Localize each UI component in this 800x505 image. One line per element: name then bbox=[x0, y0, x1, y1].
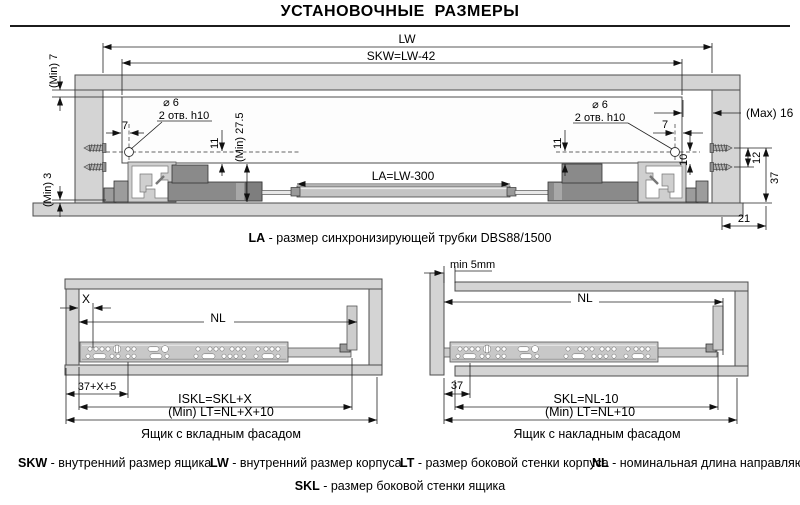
legend-desc: - номинальная длина направляющей bbox=[609, 456, 800, 470]
hole-dia-right: ⌀ 6 bbox=[592, 99, 608, 111]
right-drawing-caption: Ящик с накладным фасадом bbox=[436, 427, 758, 441]
dim-12: 12 bbox=[751, 152, 763, 164]
dim-la: LA=LW-300 bbox=[372, 169, 435, 183]
drawer-slide-rail bbox=[80, 342, 288, 362]
caption-text: - размер синхронизирующей трубки DBS88/1… bbox=[265, 231, 551, 245]
dim-x: X bbox=[82, 292, 90, 306]
cabinet-bottom-panel bbox=[33, 203, 743, 216]
legend-skw: SKW - внутренний размер ящика bbox=[18, 456, 211, 470]
right-slide-assembly bbox=[515, 162, 708, 202]
drawer-overlay-facade-drawing: min 5mm NL 37 SKL=NL-10 (Min) LT=NL+10 bbox=[424, 259, 748, 424]
dim-skw: SKW=LW-42 bbox=[367, 49, 436, 63]
dim-37: 37 bbox=[769, 172, 781, 184]
legend-desc: - внутренний размер корпуса bbox=[229, 456, 402, 470]
dim-skl: SKL=NL-10 bbox=[554, 392, 619, 406]
hole-note-left: 2 отв. h10 bbox=[159, 110, 209, 122]
legend-term: LT bbox=[400, 456, 414, 470]
inset-facade bbox=[66, 289, 79, 365]
legend-desc: - размер боковой стенки ящика bbox=[320, 479, 506, 493]
legend-lt: LT - размер боковой стенки корпуса bbox=[400, 456, 609, 470]
dim-min7: (Min) 7 bbox=[48, 54, 60, 88]
legend-desc: - внутренний размер ящика bbox=[47, 456, 211, 470]
drawer-inset-facade-drawing: X NL 37+X+5 ISKL=SKL+X (Min) LT=NL+X+10 bbox=[60, 279, 382, 424]
cabinet-bottom bbox=[455, 366, 748, 376]
hole-dia-left: ⌀ 6 bbox=[163, 97, 179, 109]
overlay-facade bbox=[430, 273, 444, 375]
caption-term: LA bbox=[248, 231, 265, 245]
cabinet-top bbox=[65, 279, 382, 289]
main-drawing-caption: LA - размер синхронизирующей трубки DBS8… bbox=[0, 231, 800, 245]
dim-nl-right: NL bbox=[577, 291, 593, 305]
dim-offset-left: 37+X+5 bbox=[78, 381, 117, 393]
dim-max16: (Max) 16 bbox=[746, 106, 794, 120]
dim-7-right: 7 bbox=[662, 119, 668, 131]
dim-lt-left: (Min) LT=NL+X+10 bbox=[168, 405, 274, 419]
cabinet-top bbox=[455, 282, 748, 291]
installation-dimensions-page: УСТАНОВОЧНЫЕ РАЗМЕРЫ bbox=[0, 0, 800, 505]
mounting-hole-left bbox=[125, 148, 134, 157]
legend-skl: SKL - размер боковой стенки ящика bbox=[0, 479, 800, 493]
legend-nl: NL - номинальная длина направляющей bbox=[592, 456, 800, 470]
cabinet-top-panel bbox=[75, 75, 740, 90]
dim-11-left: 11 bbox=[209, 138, 221, 149]
legend-term: LW bbox=[210, 456, 229, 470]
cabinet-back bbox=[369, 289, 382, 375]
dim-min5: min 5mm bbox=[450, 259, 495, 271]
legend-term: SKW bbox=[18, 456, 47, 470]
dim-7-left: 7 bbox=[122, 120, 128, 132]
dim-min275: (Min) 27.5 bbox=[234, 112, 246, 162]
main-cross-section: LW SKW=LW-42 (Min) 7 (Min) 3 ⌀ 6 2 отв. … bbox=[33, 32, 794, 230]
dim-10: 10 bbox=[678, 154, 690, 166]
cabinet-bottom bbox=[65, 365, 382, 375]
legend-term: NL bbox=[592, 456, 609, 470]
synchronizing-tube bbox=[291, 186, 516, 197]
rear-bracket bbox=[713, 306, 723, 350]
dim-lt-right: (Min) LT=NL+10 bbox=[545, 405, 635, 419]
dim-min3: (Min) 3 bbox=[42, 173, 54, 207]
dim-lw: LW bbox=[398, 32, 416, 46]
dim-21: 21 bbox=[738, 213, 750, 225]
dim-iskl: ISKL=SKL+X bbox=[178, 392, 252, 406]
legend-desc: - размер боковой стенки корпуса bbox=[414, 456, 608, 470]
drawer-slide-rail bbox=[450, 342, 658, 362]
rear-bracket bbox=[347, 306, 357, 350]
dim-offset-right: 37 bbox=[451, 380, 463, 392]
left-slide-assembly bbox=[104, 162, 297, 202]
dim-nl-left: NL bbox=[210, 311, 226, 325]
left-drawing-caption: Ящик с вкладным фасадом bbox=[60, 427, 382, 441]
legend-lw: LW - внутренний размер корпуса bbox=[210, 456, 402, 470]
cabinet-back bbox=[735, 291, 748, 375]
legend-term: SKL bbox=[295, 479, 320, 493]
hole-note-right: 2 отв. h10 bbox=[575, 112, 625, 124]
dim-11-right: 11 bbox=[552, 138, 564, 149]
